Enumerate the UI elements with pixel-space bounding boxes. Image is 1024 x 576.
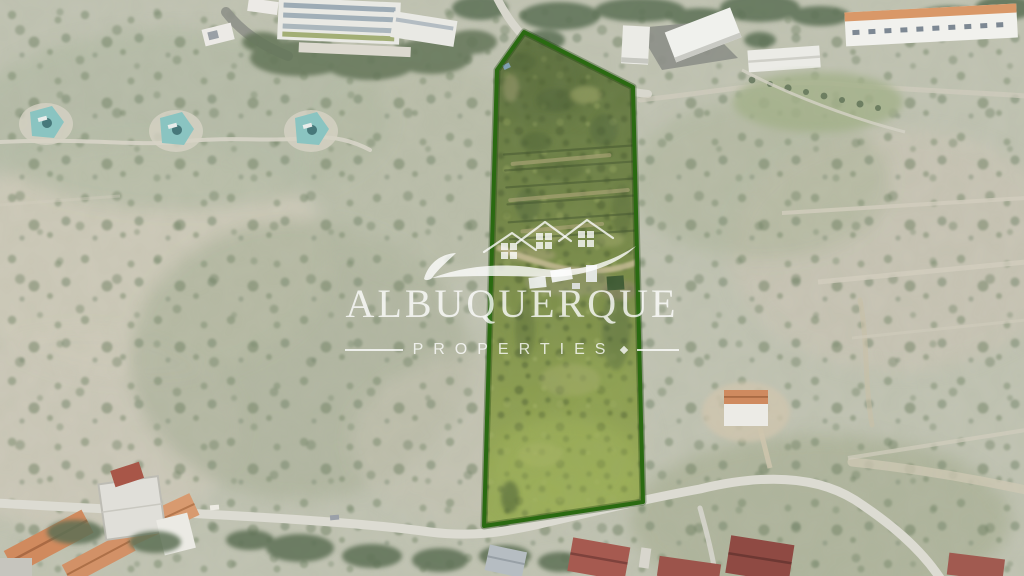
terrain-photo bbox=[0, 0, 1024, 576]
aerial-property-photo: ALBUQUERQUE PROPERTIES bbox=[0, 0, 1024, 576]
